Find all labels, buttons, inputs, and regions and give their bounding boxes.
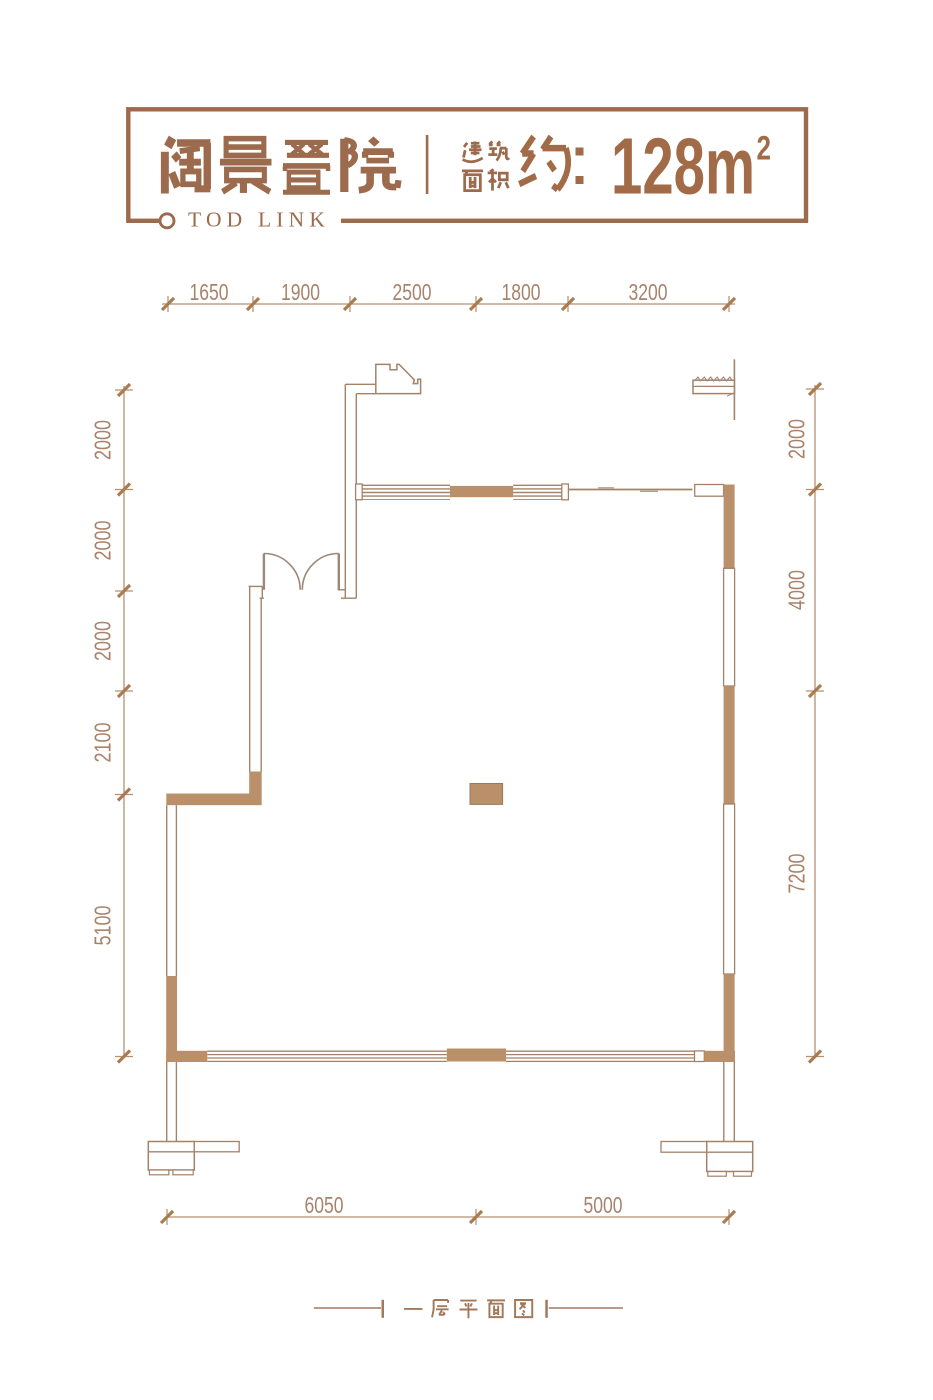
svg-text:1900: 1900 <box>281 279 320 305</box>
svg-text:5000: 5000 <box>584 1192 623 1218</box>
svg-text:1650: 1650 <box>190 279 229 305</box>
svg-text:2000: 2000 <box>90 420 116 460</box>
svg-text:5100: 5100 <box>90 906 116 946</box>
svg-text:2000: 2000 <box>90 521 116 561</box>
svg-text:2000: 2000 <box>90 621 116 661</box>
svg-text:2: 2 <box>757 130 772 168</box>
svg-text:TOD LINK: TOD LINK <box>188 208 330 232</box>
svg-text:7200: 7200 <box>784 854 810 894</box>
svg-text:4000: 4000 <box>784 570 810 610</box>
svg-text:2500: 2500 <box>393 279 432 305</box>
svg-text:1800: 1800 <box>502 279 541 305</box>
svg-text:2100: 2100 <box>90 723 116 763</box>
svg-text:3200: 3200 <box>629 279 668 305</box>
svg-text:128m: 128m <box>611 122 755 211</box>
svg-text:2000: 2000 <box>784 419 810 459</box>
svg-text:6050: 6050 <box>305 1192 344 1218</box>
